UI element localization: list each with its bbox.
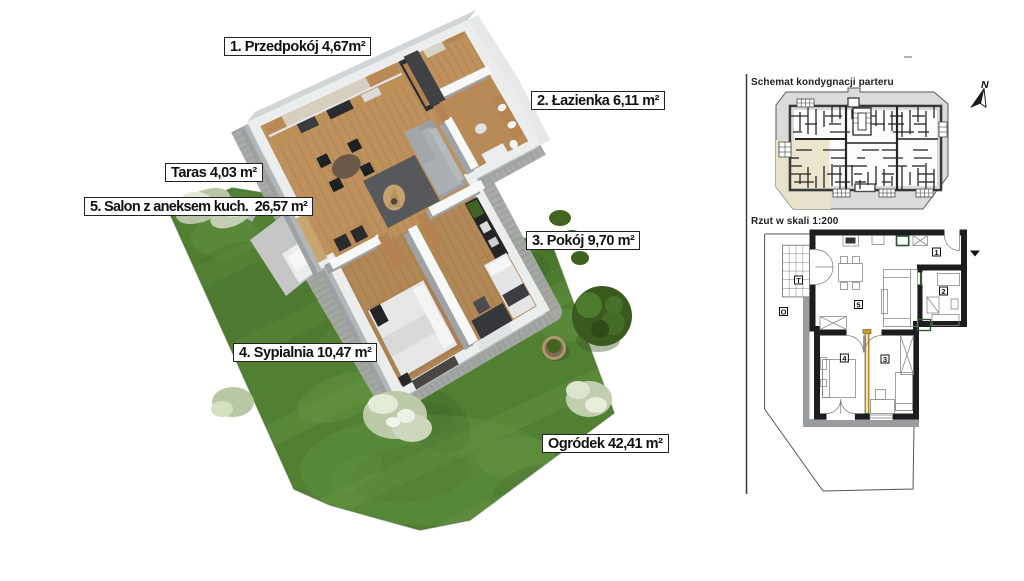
svg-text:N: N (981, 79, 989, 91)
svg-text:3: 3 (883, 355, 887, 364)
svg-text:1: 1 (934, 248, 938, 257)
svg-text:O: O (781, 307, 787, 316)
svg-text:5: 5 (856, 300, 860, 309)
svg-text:T: T (796, 276, 801, 285)
svg-text:2: 2 (941, 287, 945, 296)
